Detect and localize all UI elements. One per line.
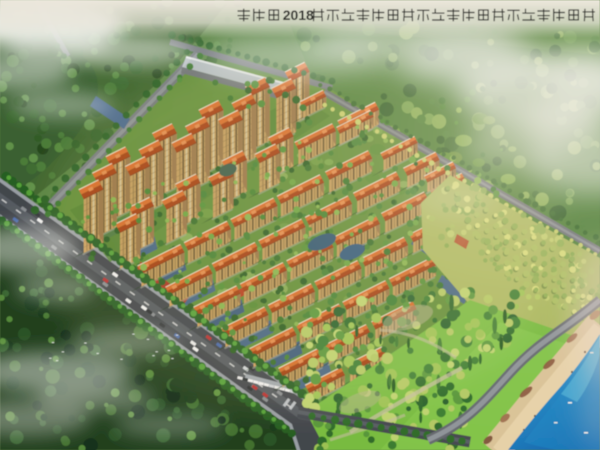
svg-text:2018: 2018 (283, 7, 314, 23)
